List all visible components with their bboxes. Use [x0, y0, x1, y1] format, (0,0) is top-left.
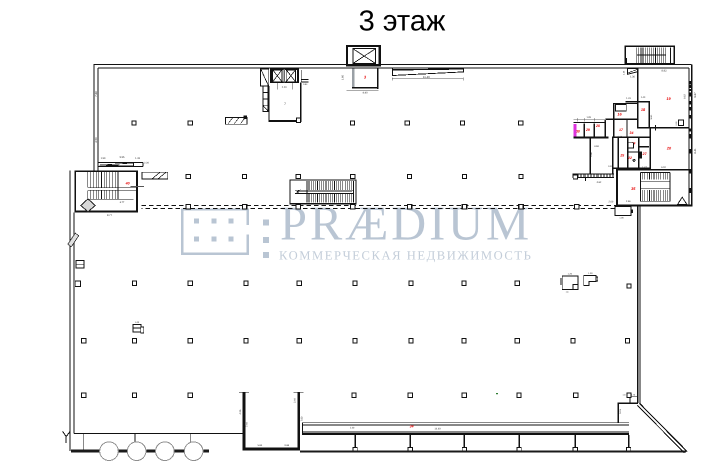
svg-text:11.49: 11.49	[423, 75, 430, 79]
svg-text:2.44: 2.44	[294, 398, 297, 403]
svg-text:25: 25	[619, 154, 624, 158]
svg-text:9.86: 9.86	[284, 444, 289, 447]
svg-text:1.99: 1.99	[101, 157, 106, 160]
svg-text:4.50: 4.50	[94, 137, 98, 143]
svg-text:2.26: 2.26	[144, 162, 149, 165]
svg-text:7.88: 7.88	[94, 91, 98, 97]
svg-text:0.82: 0.82	[597, 181, 602, 184]
svg-text:8.41: 8.41	[694, 148, 697, 154]
svg-text:9.87: 9.87	[683, 94, 686, 99]
svg-text:7.44: 7.44	[245, 422, 248, 427]
svg-text:1.36: 1.36	[630, 75, 635, 78]
svg-text:КОММЕРЧЕСКАЯ НЕДВИЖИМОСТЬ: КОММЕРЧЕСКАЯ НЕДВИЖИМОСТЬ	[279, 249, 532, 263]
svg-text:4.64: 4.64	[590, 152, 593, 157]
svg-text:30: 30	[576, 129, 580, 133]
svg-text:7: 7	[284, 102, 286, 106]
svg-text:5.84: 5.84	[258, 444, 263, 447]
svg-text:5.55: 5.55	[120, 156, 125, 159]
svg-text:7.80: 7.80	[301, 416, 304, 421]
svg-text:9.87: 9.87	[694, 92, 697, 98]
svg-text:8.77: 8.77	[107, 214, 113, 217]
svg-text:22: 22	[627, 156, 632, 160]
svg-text:34: 34	[410, 424, 414, 428]
svg-text:1.05: 1.05	[586, 116, 591, 119]
svg-text:6.77: 6.77	[120, 201, 125, 204]
svg-text:1.43: 1.43	[641, 96, 646, 99]
svg-text:14.49: 14.49	[434, 428, 441, 431]
svg-text:4.25: 4.25	[239, 409, 242, 414]
svg-text:1.60: 1.60	[342, 74, 345, 80]
svg-text:2.00: 2.00	[608, 200, 613, 203]
svg-text:3 этаж: 3 этаж	[359, 5, 446, 37]
svg-text:1.43: 1.43	[626, 97, 631, 100]
svg-text:29: 29	[585, 128, 590, 132]
svg-text:1.40: 1.40	[350, 426, 355, 429]
svg-text:28: 28	[595, 124, 600, 128]
svg-text:3.69: 3.69	[594, 145, 599, 148]
svg-text:3.15: 3.15	[619, 409, 622, 414]
svg-text:2.20: 2.20	[282, 86, 287, 89]
svg-text:40: 40	[125, 182, 130, 186]
svg-text:1.43: 1.43	[135, 157, 140, 160]
svg-text:4.40: 4.40	[362, 91, 368, 94]
svg-text:8.82: 8.82	[661, 70, 667, 73]
svg-text:2.66: 2.66	[626, 200, 631, 203]
svg-text:5.61: 5.61	[650, 114, 653, 119]
svg-text:20: 20	[666, 146, 672, 150]
svg-text:34: 34	[630, 131, 634, 135]
svg-text:6.02: 6.02	[661, 166, 666, 169]
